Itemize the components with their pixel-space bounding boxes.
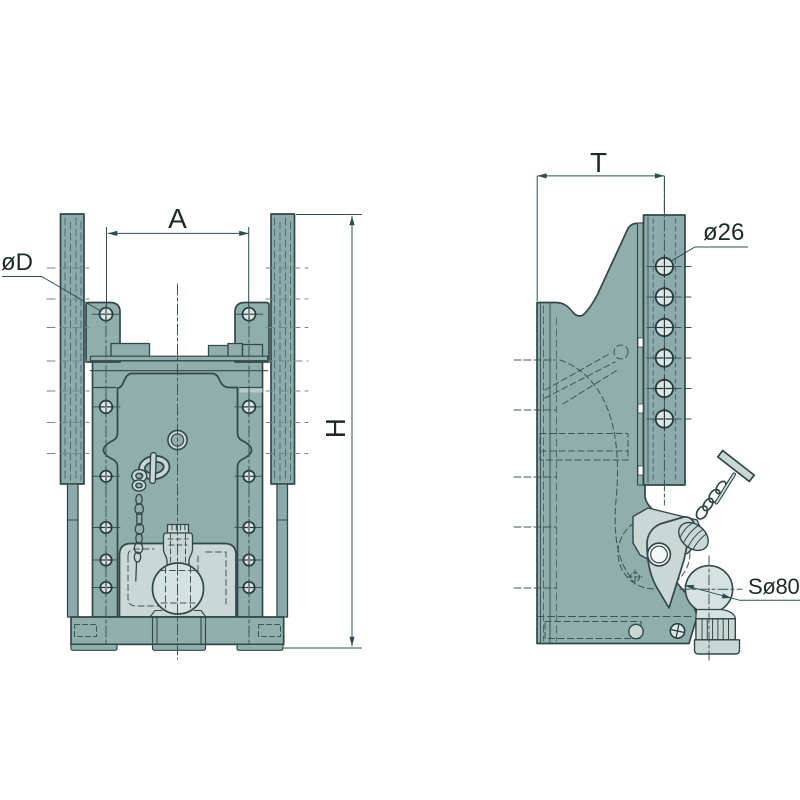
svg-text:øD: øD [1,249,33,276]
svg-text:ø26: ø26 [703,219,744,246]
svg-text:T: T [590,147,607,178]
svg-text:A: A [168,203,187,234]
svg-text:Sø80: Sø80 [748,574,799,599]
svg-text:H: H [320,418,351,438]
